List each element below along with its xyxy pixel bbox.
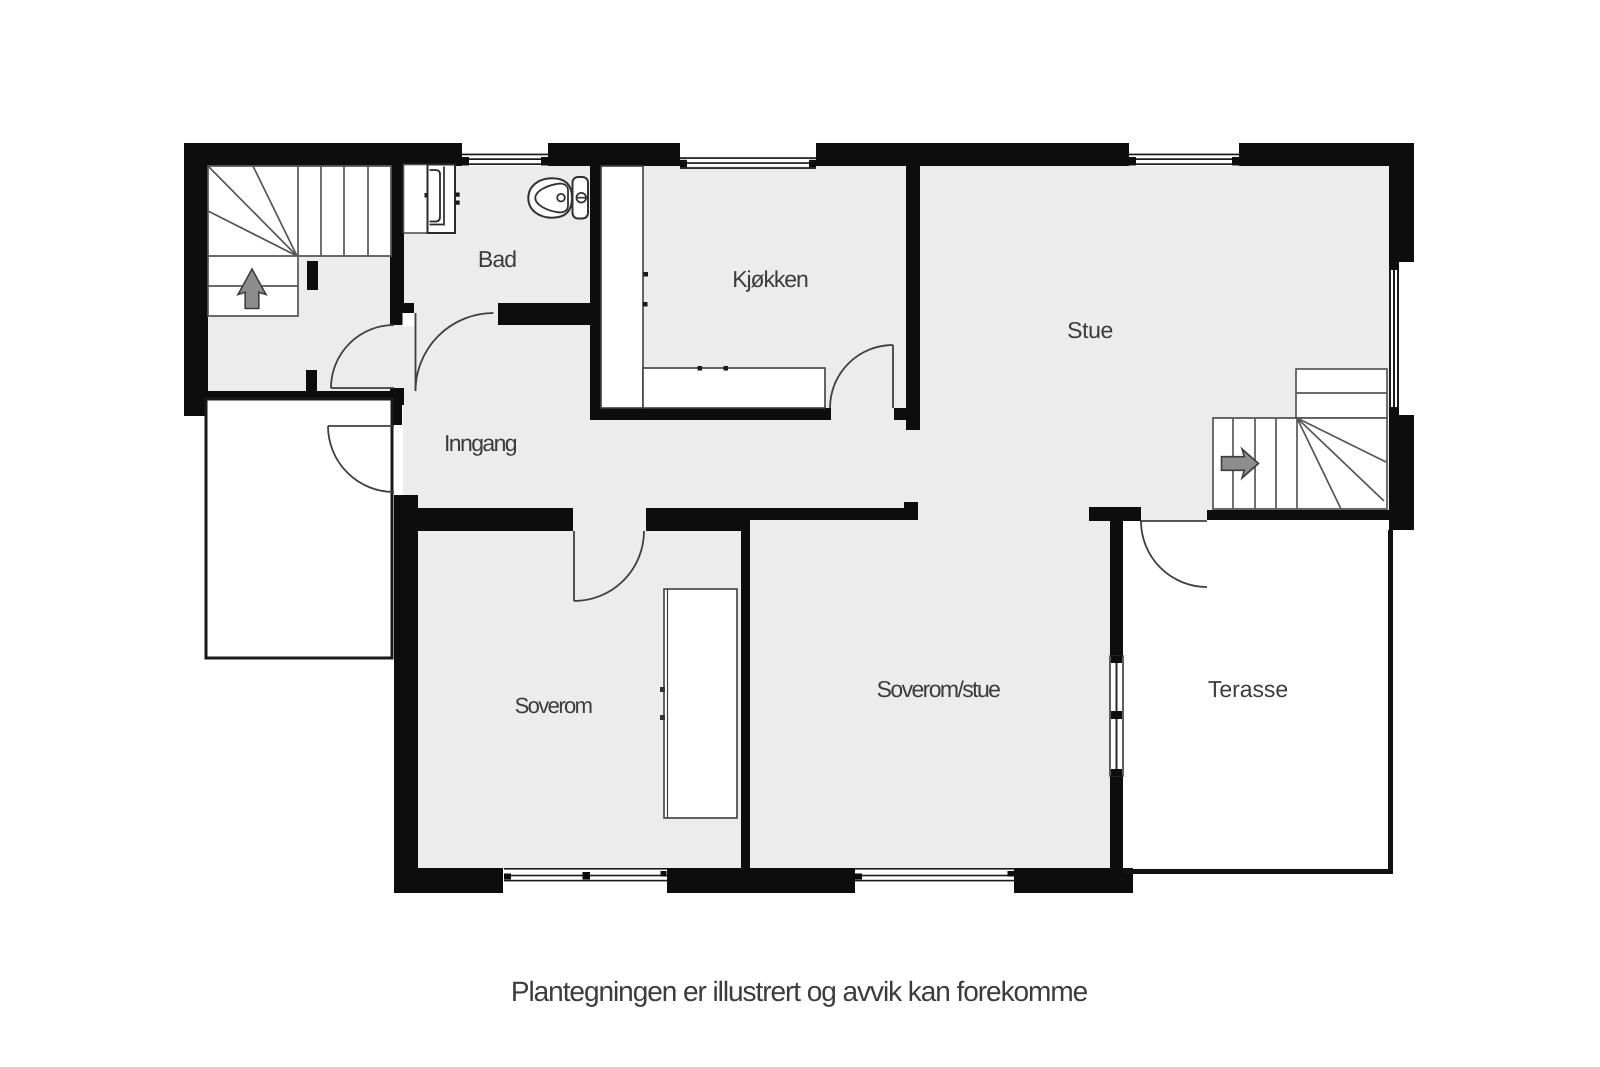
svg-text:Soverom: Soverom bbox=[515, 693, 592, 718]
svg-text:Kjøkken: Kjøkken bbox=[732, 266, 808, 292]
svg-text:Plantegningen er illustrert og: Plantegningen er illustrert og avvik kan… bbox=[511, 976, 1088, 1007]
svg-text:Inngang: Inngang bbox=[444, 430, 517, 456]
svg-text:Soverom/stue: Soverom/stue bbox=[877, 676, 1001, 702]
svg-text:Stue: Stue bbox=[1067, 317, 1113, 343]
svg-text:Bad: Bad bbox=[478, 246, 516, 272]
svg-text:Terasse: Terasse bbox=[1208, 676, 1288, 702]
